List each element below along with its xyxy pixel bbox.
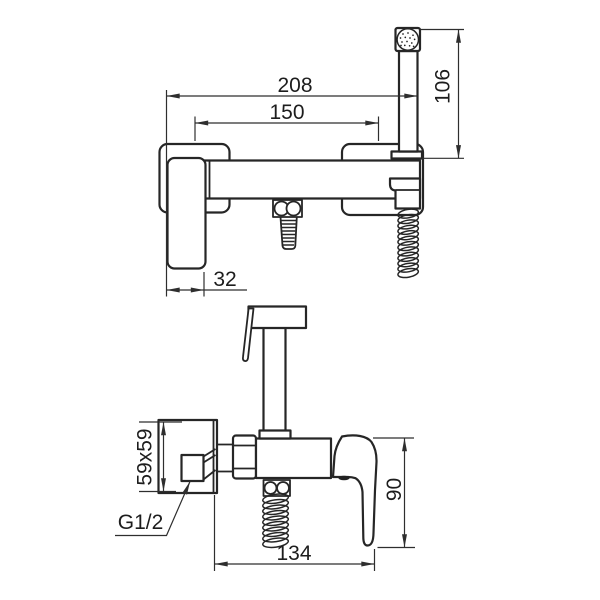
front-view: 208 150 106 32 (160, 28, 465, 297)
mixer-bar-body (204, 161, 420, 199)
sprayer-holder-flange (260, 431, 291, 439)
outlet-nut-circle (265, 482, 277, 494)
sprayer-trigger (243, 309, 254, 362)
mixer-handle-front (168, 158, 206, 269)
dim-text-mounting-centers: 150 (269, 101, 304, 124)
mixer-lever-side (333, 435, 377, 545)
sprayer-shaft (264, 328, 286, 431)
square-inlet-fitting (182, 455, 204, 481)
dim-text-connection-thread: G1/2 (118, 511, 164, 534)
mixer-dimension-drawing: 208 150 106 32 (0, 0, 600, 600)
outlet-nut-circle (277, 482, 289, 494)
threaded-stud-outline (281, 217, 297, 249)
dim-text-handle-height: 90 (383, 478, 406, 501)
side-view: 59x59 90 134 G1/2 (115, 307, 415, 572)
technical-drawing-page: 208 150 106 32 (0, 0, 600, 600)
mounting-hex-nut (233, 436, 256, 479)
inlet-fitting-nut-circle (287, 202, 301, 216)
dim-text-handle-width: 32 (213, 268, 236, 291)
handshower-head (396, 28, 421, 51)
lever-pivot-dot (338, 476, 349, 481)
shower-hose-coil (398, 209, 418, 277)
hose-outlet-elbow (390, 179, 420, 209)
sprayer-head (249, 307, 307, 329)
handshower-handle (399, 51, 418, 152)
mixer-body-side (256, 439, 331, 479)
shower-hose-coil-side (263, 494, 289, 547)
stud-threads (281, 221, 296, 246)
connection-pipe (217, 445, 233, 472)
dim-text-overall-width: 208 (277, 74, 312, 97)
dim-text-handshower-height: 106 (432, 69, 455, 104)
dim-text-wall-plate: 59x59 (134, 428, 157, 485)
dim-text-overall-depth: 134 (276, 542, 311, 565)
